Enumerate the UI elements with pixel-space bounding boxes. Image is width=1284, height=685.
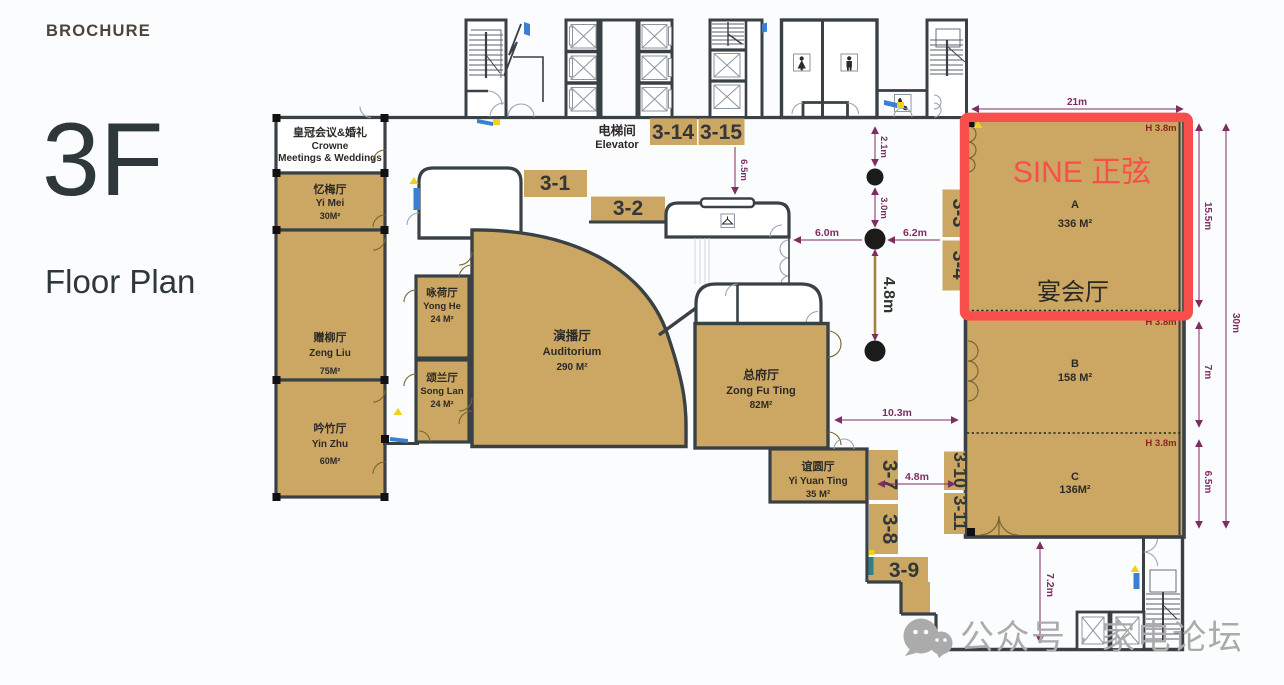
svg-text:H 3.8m: H 3.8m	[1145, 438, 1176, 449]
svg-text:BROCHURE: BROCHURE	[46, 22, 151, 40]
svg-text:电梯间: 电梯间	[598, 123, 636, 138]
svg-text:Zeng Liu: Zeng Liu	[309, 348, 351, 359]
svg-text:30M²: 30M²	[320, 211, 341, 221]
svg-text:3F: 3F	[42, 102, 163, 218]
svg-text:3-9: 3-9	[889, 559, 919, 582]
svg-text:6.2m: 6.2m	[903, 227, 927, 239]
svg-text:35 M²: 35 M²	[806, 489, 830, 500]
svg-text:Yin Zhu: Yin Zhu	[312, 439, 348, 450]
svg-text:6.0m: 6.0m	[815, 227, 839, 239]
svg-text:60M²: 60M²	[320, 456, 341, 466]
svg-text:290 M²: 290 M²	[556, 362, 588, 373]
svg-text:Song Lan: Song Lan	[420, 386, 463, 397]
svg-text:82M²: 82M²	[750, 400, 773, 411]
svg-text:皇冠会议&婚礼: 皇冠会议&婚礼	[293, 125, 367, 139]
svg-text:赠柳厅: 赠柳厅	[314, 330, 347, 344]
svg-text:演播厅: 演播厅	[553, 328, 591, 343]
svg-text:Yi Yuan Ting: Yi Yuan Ting	[788, 476, 847, 487]
svg-text:336 M²: 336 M²	[1058, 218, 1093, 230]
svg-text:3.0m: 3.0m	[878, 197, 889, 219]
svg-text:Yi Mei: Yi Mei	[316, 198, 345, 209]
svg-text:Auditorium: Auditorium	[543, 346, 602, 358]
svg-text:3-15: 3-15	[700, 121, 742, 144]
svg-text:Meetings & Weddings: Meetings & Weddings	[278, 153, 382, 164]
svg-text:4.8m: 4.8m	[880, 277, 897, 313]
svg-text:Zong Fu Ting: Zong Fu Ting	[726, 385, 795, 397]
svg-text:7m: 7m	[1202, 365, 1213, 380]
svg-text:颂兰厅: 颂兰厅	[426, 371, 458, 384]
svg-text:Crowne: Crowne	[312, 141, 349, 152]
svg-text:Elevator: Elevator	[595, 139, 639, 151]
svg-text:24 M²: 24 M²	[430, 399, 453, 409]
svg-text:忆梅厅: 忆梅厅	[314, 182, 347, 196]
svg-text:75M²: 75M²	[320, 366, 341, 376]
svg-text:24 M²: 24 M²	[430, 314, 453, 324]
svg-text:Floor Plan: Floor Plan	[45, 263, 195, 300]
svg-text:3-14: 3-14	[652, 121, 694, 144]
svg-text:3-2: 3-2	[613, 197, 643, 220]
svg-text:SINE 正弦: SINE 正弦	[1013, 156, 1151, 189]
svg-text:谊圆厅: 谊圆厅	[802, 459, 835, 473]
svg-text:30m: 30m	[1230, 313, 1241, 333]
svg-text:咏荷厅: 咏荷厅	[426, 286, 458, 299]
svg-text:C: C	[1071, 471, 1079, 483]
svg-text:15.5m: 15.5m	[1202, 202, 1213, 230]
svg-text:3-10: 3-10	[950, 452, 970, 488]
svg-text:3-1: 3-1	[540, 172, 571, 195]
svg-text:Yong He: Yong He	[423, 301, 461, 312]
svg-text:3-7: 3-7	[878, 460, 901, 490]
svg-text:4.8m: 4.8m	[905, 471, 929, 483]
svg-text:10.3m: 10.3m	[882, 407, 912, 419]
svg-text:21m: 21m	[1067, 97, 1087, 108]
svg-text:136M²: 136M²	[1059, 484, 1091, 496]
svg-text:总府厅: 总府厅	[743, 367, 779, 382]
svg-text:6.5m: 6.5m	[1202, 471, 1213, 494]
svg-text:158 M²: 158 M²	[1058, 372, 1093, 384]
svg-text:H 3.8m: H 3.8m	[1145, 123, 1176, 134]
svg-text:6.5m: 6.5m	[738, 159, 749, 181]
svg-text:3-8: 3-8	[878, 514, 901, 545]
svg-text:3-11: 3-11	[950, 495, 970, 530]
svg-text:宴会厅: 宴会厅	[1037, 279, 1109, 306]
svg-text:2.1m: 2.1m	[878, 136, 889, 158]
svg-text:A: A	[1071, 199, 1079, 211]
svg-text:B: B	[1071, 358, 1079, 370]
svg-text:公众号 · 家电论坛: 公众号 · 家电论坛	[960, 619, 1243, 657]
svg-text:7.2m: 7.2m	[1044, 573, 1056, 597]
svg-text:吟竹厅: 吟竹厅	[314, 421, 347, 435]
